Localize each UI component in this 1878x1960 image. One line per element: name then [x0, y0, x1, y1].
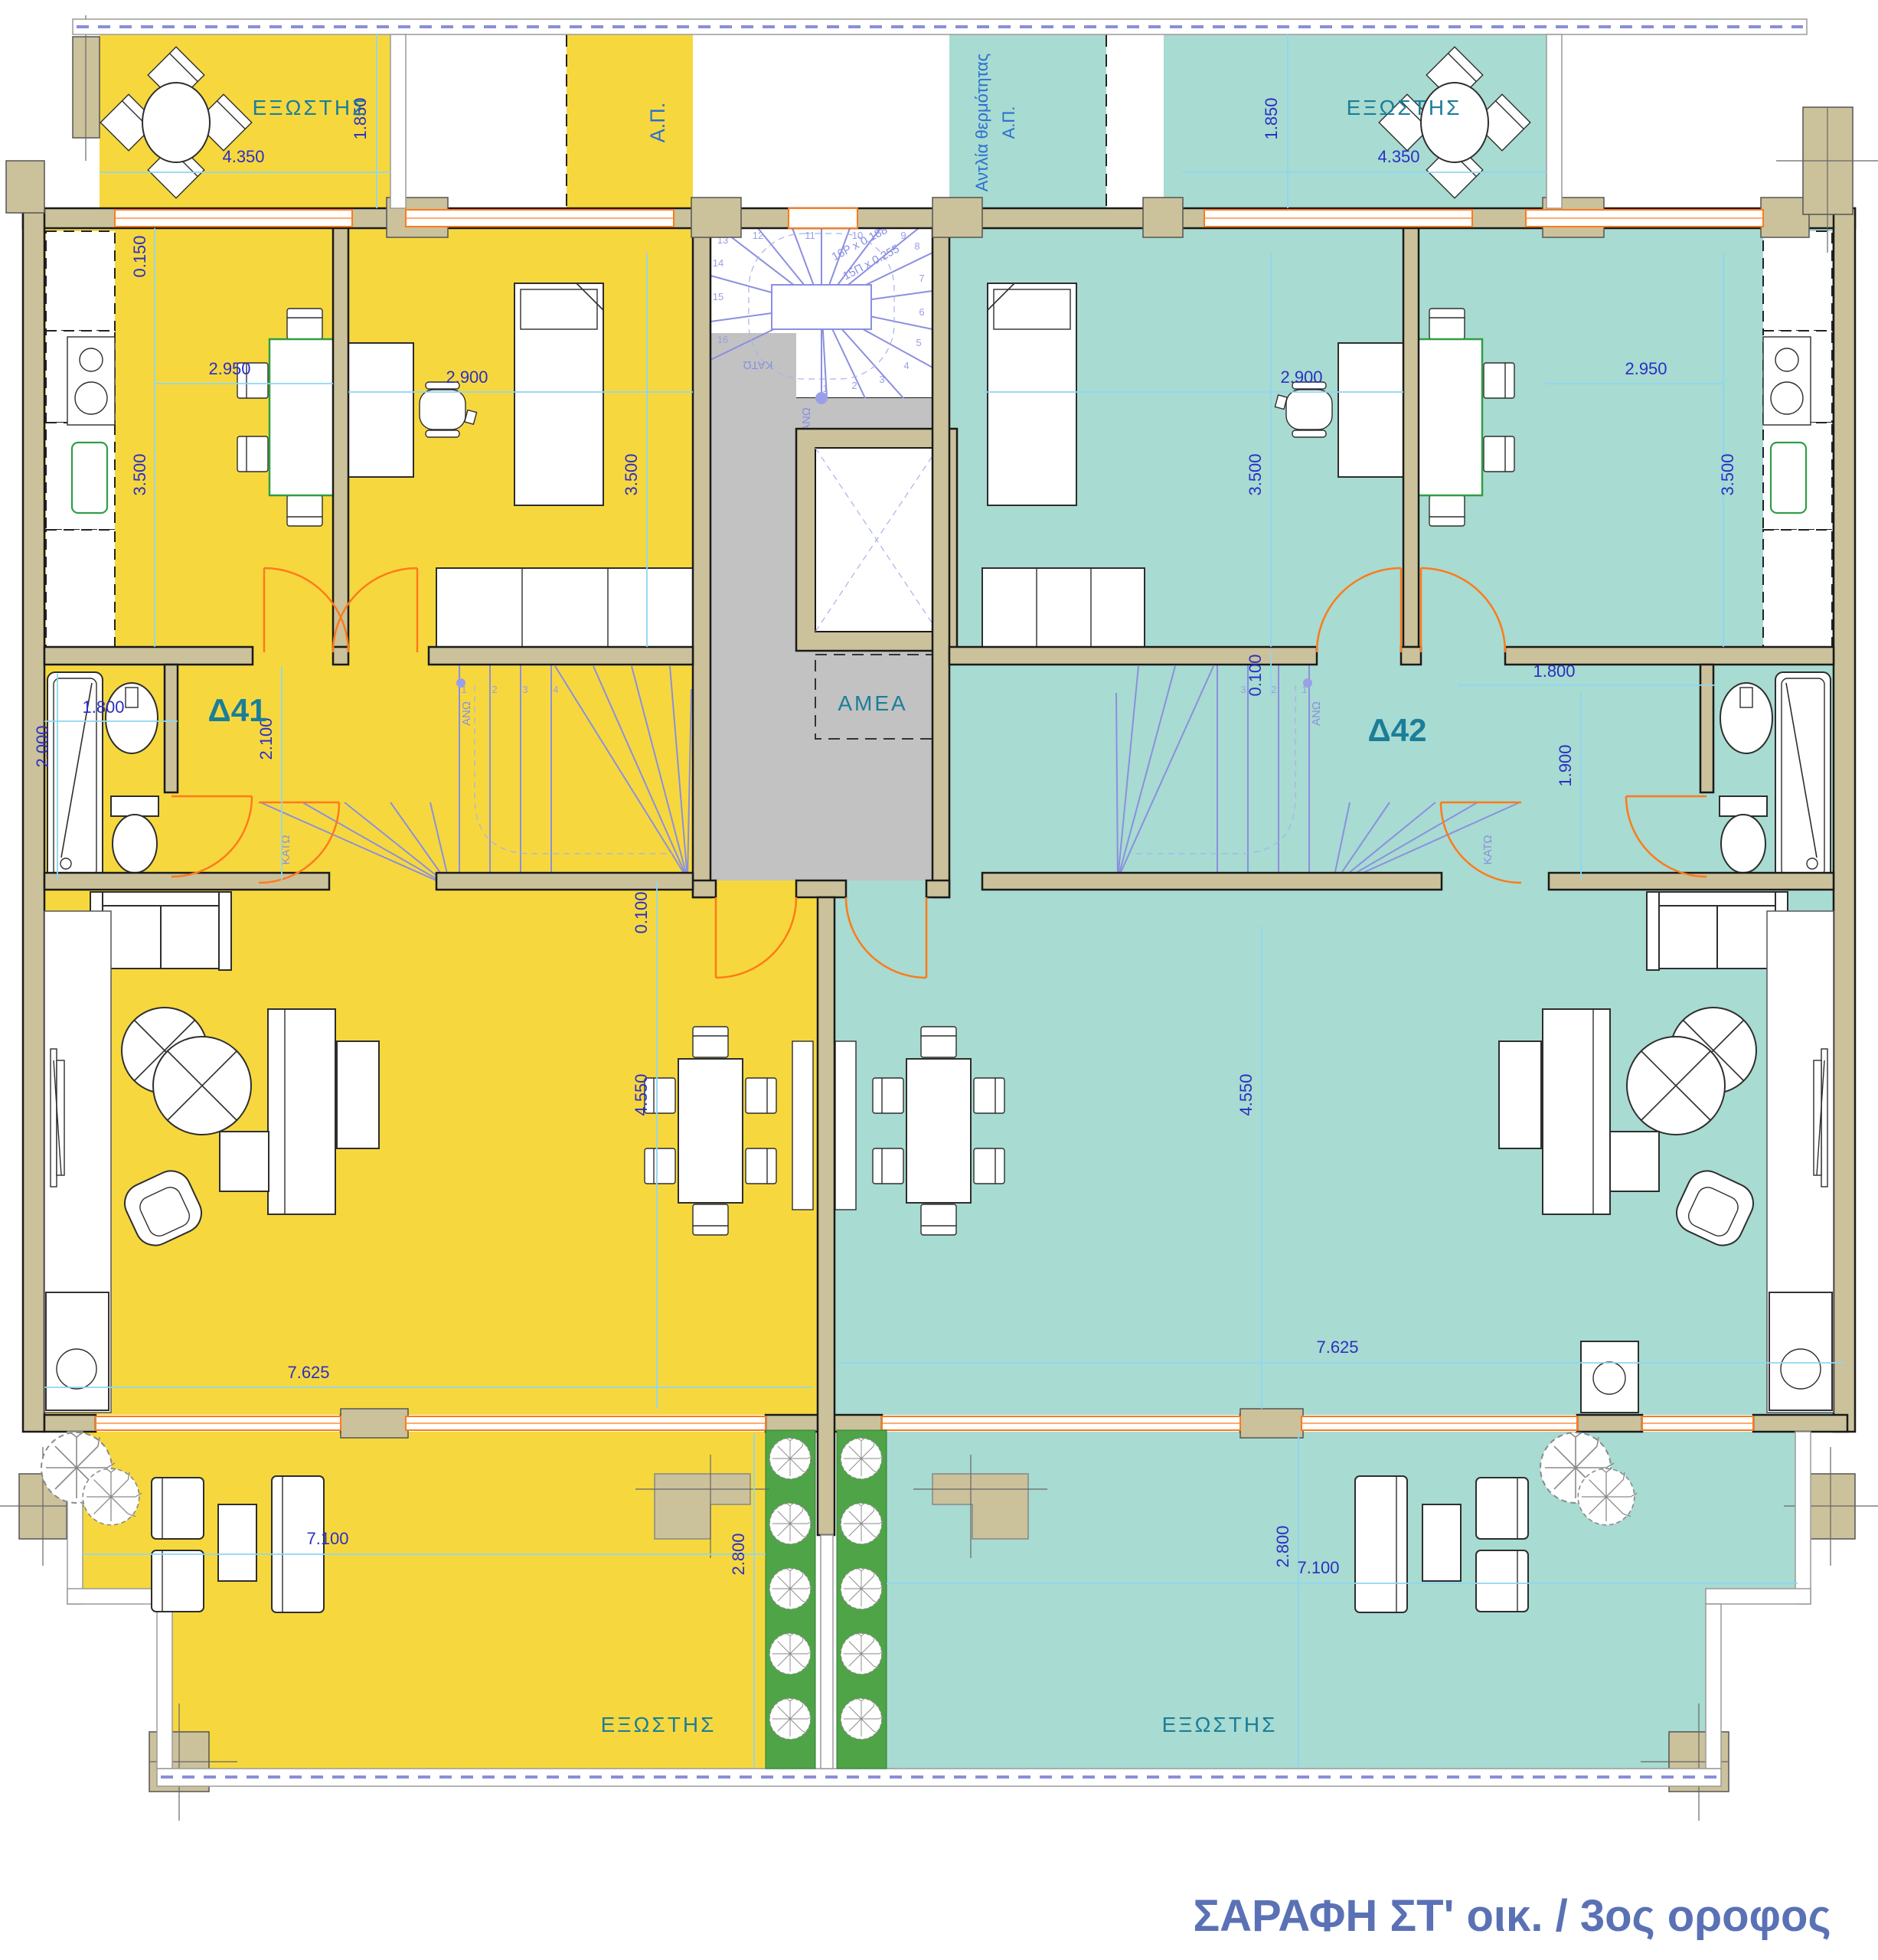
- dim: 7.100: [1297, 1558, 1339, 1577]
- desk: [1338, 343, 1403, 477]
- dim: 2.900: [446, 367, 488, 387]
- tread-number: 2: [1271, 684, 1276, 695]
- tread-number: 7: [919, 273, 924, 284]
- dim: 3.500: [1246, 453, 1265, 495]
- dim: 1.850: [1262, 97, 1281, 139]
- dim: 2.000: [33, 725, 52, 767]
- toilet-tank: [111, 796, 158, 816]
- main-stair-landing: [772, 285, 871, 329]
- main-stair-down-label: ΚΑΤΩ: [743, 358, 772, 371]
- dim: 7.625: [287, 1363, 329, 1382]
- ap-room-left: [567, 34, 693, 208]
- dim: 2.950: [208, 359, 250, 378]
- tread-number: 3: [879, 374, 884, 385]
- sofa: [1543, 1009, 1610, 1214]
- tread-number: 8: [914, 240, 919, 252]
- wardrobe: [982, 568, 1145, 649]
- tread-number: 11: [805, 230, 815, 241]
- dim: 4.350: [222, 147, 264, 166]
- tread-number: 12: [753, 230, 763, 241]
- dim: 0.100: [1246, 654, 1265, 696]
- tread-number: 1: [1302, 684, 1307, 695]
- balcony-label-tr: ΕΞΩΣΤΗΣ: [1347, 96, 1462, 119]
- pillow: [521, 289, 597, 329]
- sofa: [268, 1009, 335, 1214]
- stair-up-label-d42: ΑΝΩ: [1310, 701, 1323, 726]
- apartment-label-d41: Δ41: [208, 692, 267, 728]
- dim: 7.625: [1316, 1338, 1358, 1357]
- kitchen-left: [46, 231, 115, 647]
- dim: 0.100: [632, 891, 651, 933]
- tread-number: 15: [713, 291, 723, 302]
- tread-number: 2: [851, 380, 857, 391]
- dim: 3.500: [130, 453, 149, 495]
- dim: 1.900: [1556, 744, 1575, 786]
- sofa-corner: [1610, 1132, 1659, 1191]
- wardrobe: [436, 568, 693, 649]
- kitchen-right: [1763, 231, 1832, 647]
- drawing-title: ΣΑΡΑΦΗ ΣΤ' οικ. / 3ος οροφος: [1193, 1891, 1831, 1941]
- tread-number: 16: [717, 334, 728, 345]
- water-heater: [1593, 1362, 1625, 1394]
- heat-pump-label-1: Αντλία θερμότητας: [972, 54, 991, 191]
- ap-label-left: Α.Π.: [646, 103, 669, 143]
- apartment-d42-floor: [834, 228, 1834, 1415]
- stair-up-label-d41: ΑΝΩ: [460, 701, 473, 726]
- dim: 4.550: [632, 1073, 651, 1116]
- balcony-label-bl: ΕΞΩΣΤΗΣ: [601, 1713, 717, 1736]
- toilet: [113, 815, 157, 873]
- dim: 1.800: [82, 697, 124, 717]
- dim: 0.150: [130, 235, 149, 277]
- dim: 2.800: [729, 1533, 748, 1575]
- heat-pump-label-2: Α.Π.: [999, 106, 1018, 139]
- tread-number: 2: [492, 684, 497, 695]
- side-table: [337, 1041, 379, 1148]
- tread-number: 6: [919, 306, 924, 318]
- tread-number: 14: [713, 257, 723, 269]
- tread-number: 5: [916, 337, 921, 348]
- core: ΑΝΩ ΚΑΤΩ 16Ρ x 0.188 15Π x 0.255 1 2 3 4…: [710, 224, 957, 880]
- dim: 4.550: [1236, 1073, 1256, 1116]
- toilet: [1721, 815, 1765, 873]
- dim: 3.500: [622, 453, 641, 495]
- dim: 2.950: [1625, 359, 1667, 378]
- toilet-tank: [1720, 796, 1767, 816]
- tread-number: 9: [900, 230, 906, 241]
- apartment-label-d42: Δ42: [1368, 712, 1427, 748]
- balcony-label-br: ΕΞΩΣΤΗΣ: [1162, 1713, 1278, 1736]
- pillow: [994, 289, 1070, 329]
- tread-number: 10: [852, 230, 863, 241]
- side-table: [1499, 1041, 1541, 1148]
- stair-balcony-door: [789, 208, 857, 228]
- dim: 4.350: [1377, 147, 1419, 166]
- loveseat: [1659, 906, 1717, 969]
- dim: 2.900: [1280, 367, 1322, 387]
- counter: [835, 1041, 856, 1210]
- amea-label: ΑΜΕΑ: [838, 691, 907, 715]
- dim: 7.100: [306, 1529, 348, 1548]
- desk: [348, 343, 413, 477]
- counter: [792, 1041, 813, 1210]
- loveseat-back: [90, 892, 231, 906]
- balcony-label-tl: ΕΞΩΣΤΗΣ: [253, 96, 368, 119]
- floor-plan: ΑΝΩ ΚΑΤΩ 16Ρ x 0.188 15Π x 0.255 1 2 3 4…: [0, 0, 1878, 1960]
- sofa-corner: [220, 1132, 269, 1191]
- dim: 3.500: [1718, 453, 1737, 495]
- tread-number: 1: [822, 383, 828, 394]
- divider-wall: [818, 897, 834, 1535]
- tread-number: 1: [461, 684, 466, 695]
- dim: 1.800: [1533, 661, 1575, 681]
- tread-number: 4: [903, 360, 909, 371]
- loveseat-back: [1647, 892, 1788, 906]
- dim: 2.800: [1273, 1525, 1292, 1567]
- stair-down-label-d42: ΚΑΤΩ: [1481, 835, 1494, 864]
- tread-number: 4: [553, 684, 558, 695]
- tread-number: 3: [522, 684, 527, 695]
